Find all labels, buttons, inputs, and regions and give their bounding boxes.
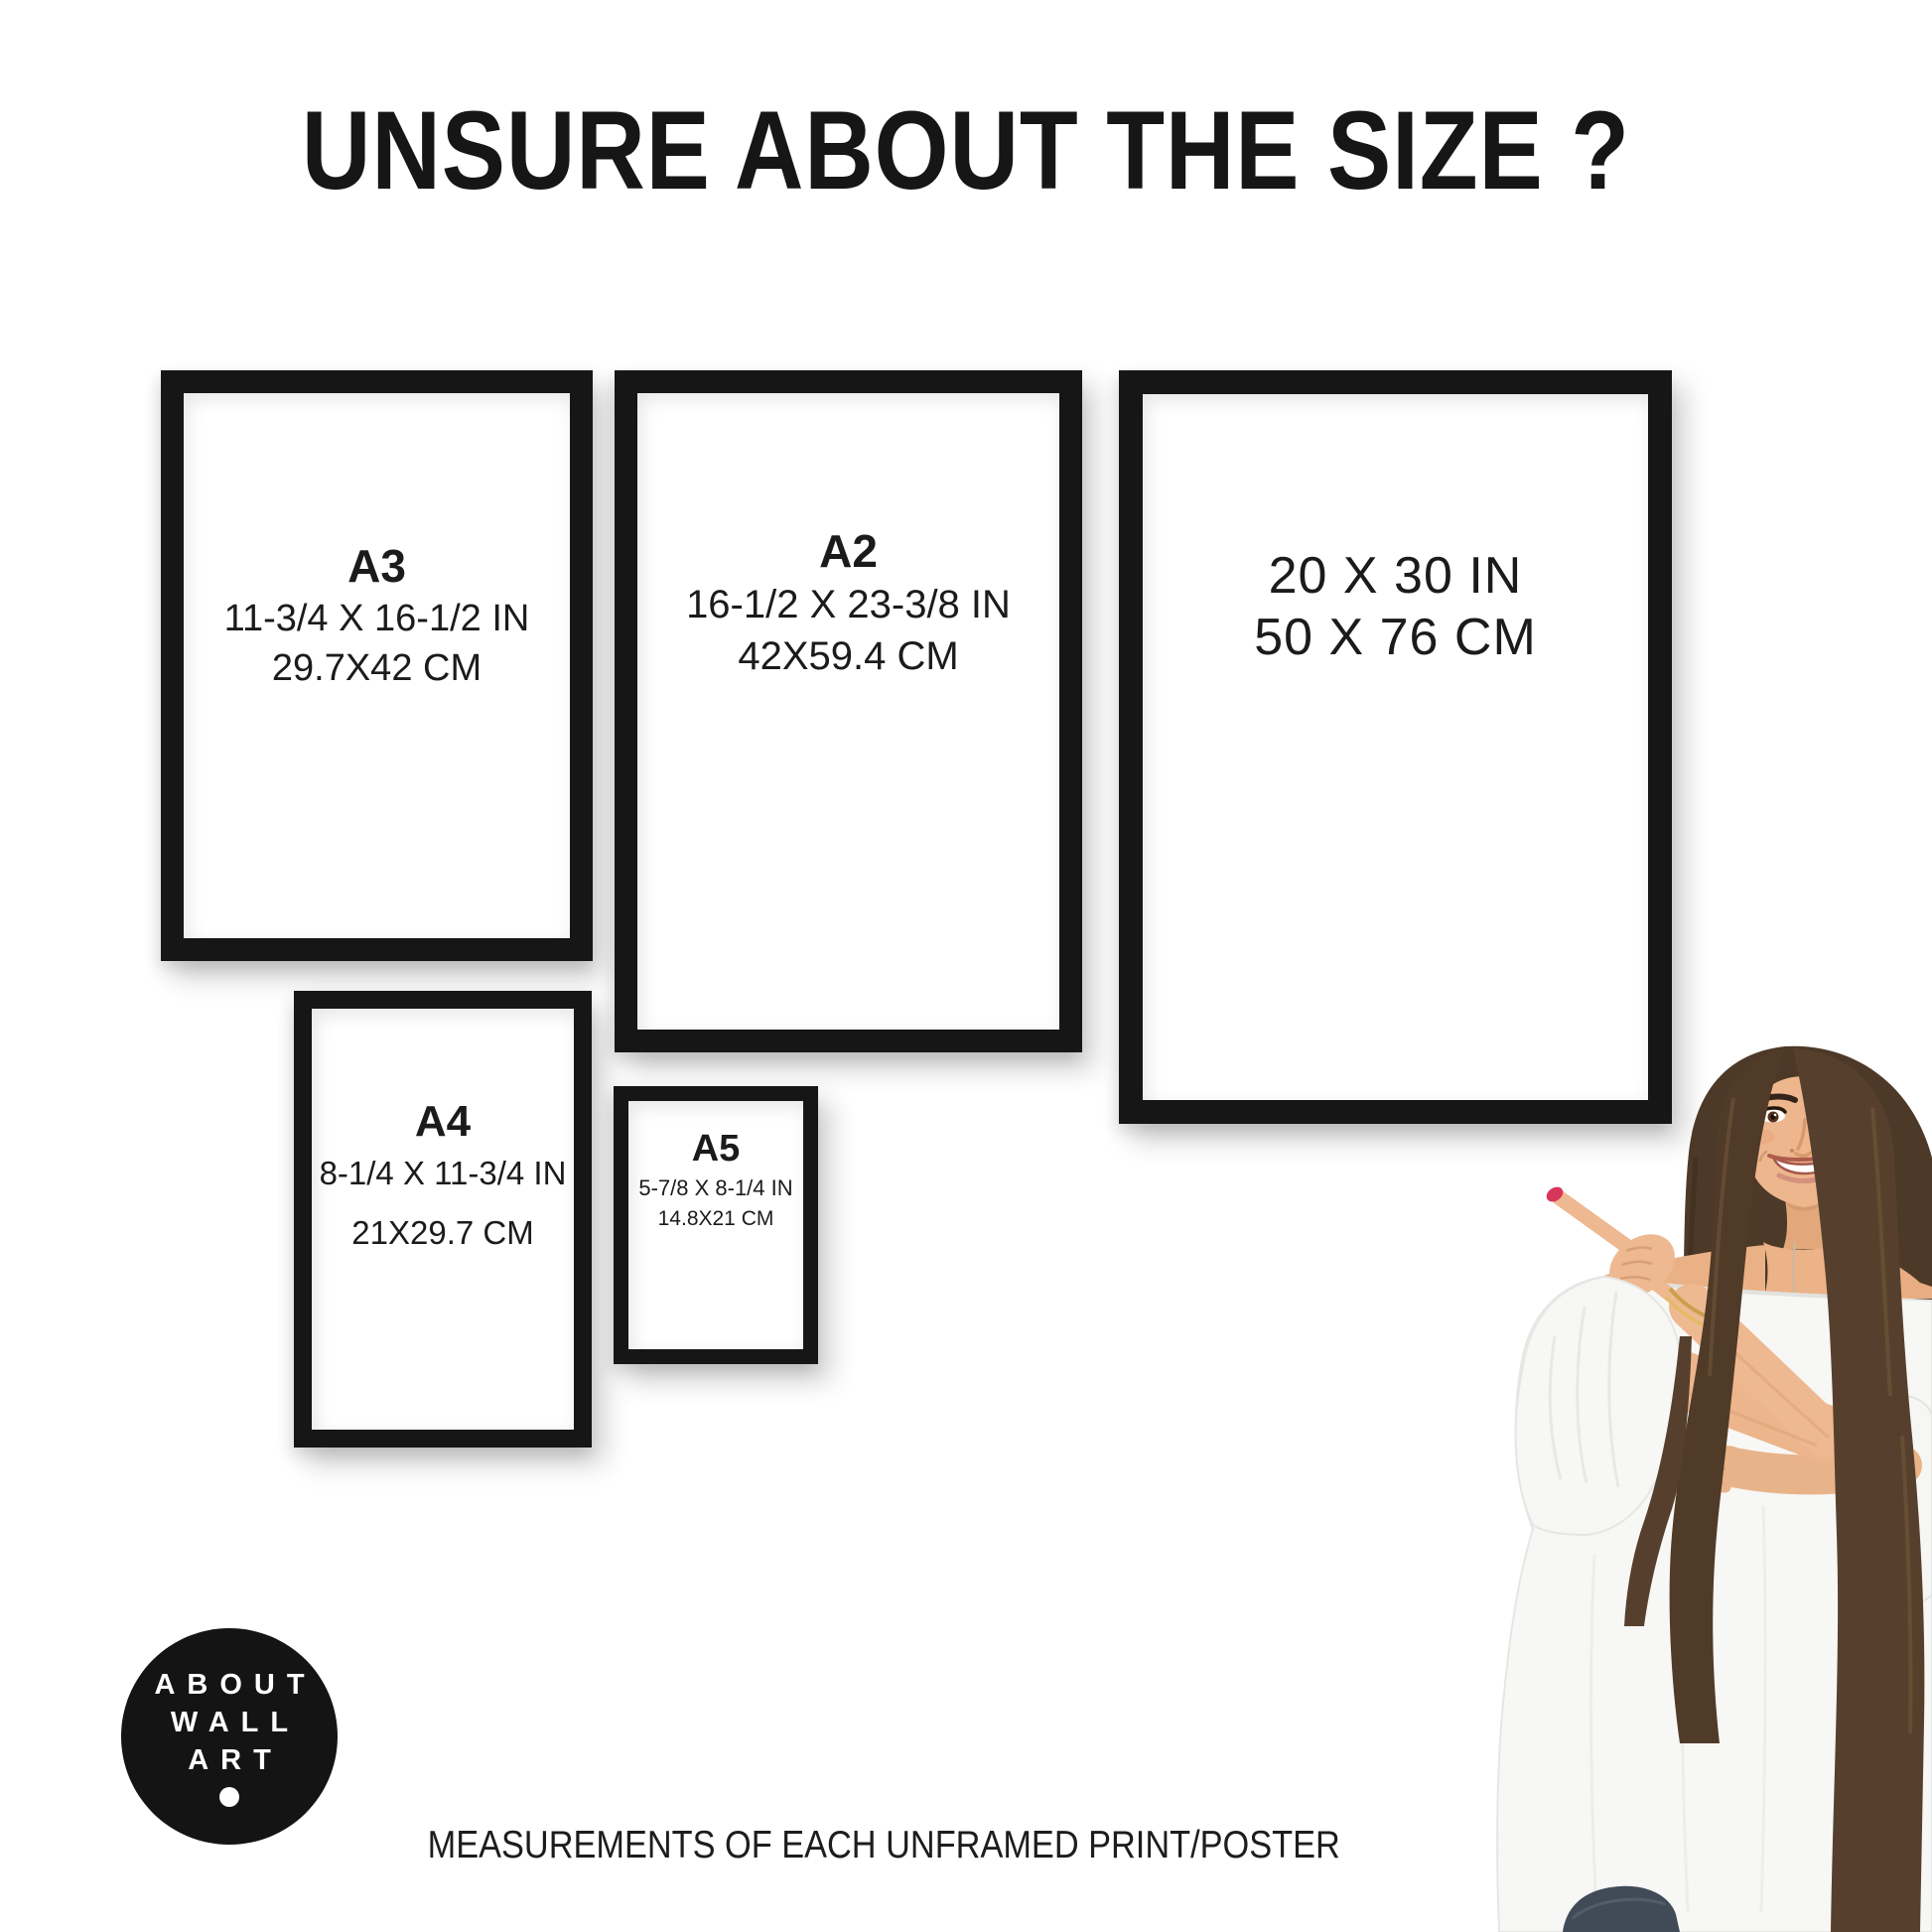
pointing-finger [1559, 1197, 1636, 1253]
size-frame-a3: A3 11-3/4 X 16-1/2 IN 29.7X42 CM [161, 370, 593, 961]
frame-a2-label: A2 [637, 523, 1059, 579]
frame-a5-label: A5 [628, 1125, 803, 1173]
footer-caption-text: MEASUREMENTS OF EACH UNFRAMED PRINT/POST… [427, 1823, 1339, 1868]
poster-size-guide: UNSURE ABOUT THE SIZE ? A3 11-3/4 X 16-1… [0, 0, 1932, 1932]
frame-a5-cm: 14.8X21 CM [628, 1204, 803, 1234]
frame-a2-cm: 42X59.4 CM [637, 630, 1059, 682]
size-frame-20x30: 20 X 30 IN 50 X 76 CM [1119, 370, 1672, 1124]
frame-a3-label: A3 [184, 538, 570, 594]
logo-dot [219, 1787, 239, 1807]
frame-a2-text: A2 16-1/2 X 23-3/8 IN 42X59.4 CM [637, 523, 1059, 682]
frame-a2-inches: 16-1/2 X 23-3/8 IN [637, 579, 1059, 630]
frame-a4-inches: 8-1/4 X 11-3/4 IN [312, 1150, 574, 1197]
frame-a3-text: A3 11-3/4 X 16-1/2 IN 29.7X42 CM [184, 538, 570, 693]
logo-line-3: ART [176, 1741, 283, 1779]
size-frame-a4: A4 8-1/4 X 11-3/4 IN 21X29.7 CM [294, 991, 592, 1448]
page-title: UNSURE ABOUT THE SIZE ? [0, 91, 1932, 210]
logo-line-2: WALL [159, 1704, 300, 1741]
frame-a5-inches: 5-7/8 X 8-1/4 IN [628, 1173, 803, 1204]
frame-a4-cm: 21X29.7 CM [312, 1211, 574, 1255]
brand-logo: ABOUT WALL ART [121, 1628, 338, 1845]
frame-20x30-inches: 20 X 30 IN [1143, 545, 1648, 607]
frame-20x30-text: 20 X 30 IN 50 X 76 CM [1143, 545, 1648, 668]
frame-a3-cm: 29.7X42 CM [184, 643, 570, 693]
size-frame-a5: A5 5-7/8 X 8-1/4 IN 14.8X21 CM [614, 1086, 818, 1364]
frame-20x30-cm: 50 X 76 CM [1143, 607, 1648, 668]
frame-a4-text: A4 8-1/4 X 11-3/4 IN 21X29.7 CM [312, 1094, 574, 1255]
footer-caption: MEASUREMENTS OF EACH UNFRAMED PRINT/POST… [338, 1823, 1430, 1868]
pointing-woman-photo [1436, 1038, 1932, 1932]
logo-line-1: ABOUT [142, 1666, 316, 1704]
frame-a3-inches: 11-3/4 X 16-1/2 IN [184, 594, 570, 643]
size-frame-a2: A2 16-1/2 X 23-3/8 IN 42X59.4 CM [615, 370, 1082, 1052]
page-title-text: UNSURE ABOUT THE SIZE ? [302, 91, 1630, 210]
frame-a4-label: A4 [312, 1094, 574, 1150]
frame-a5-text: A5 5-7/8 X 8-1/4 IN 14.8X21 CM [628, 1125, 803, 1234]
